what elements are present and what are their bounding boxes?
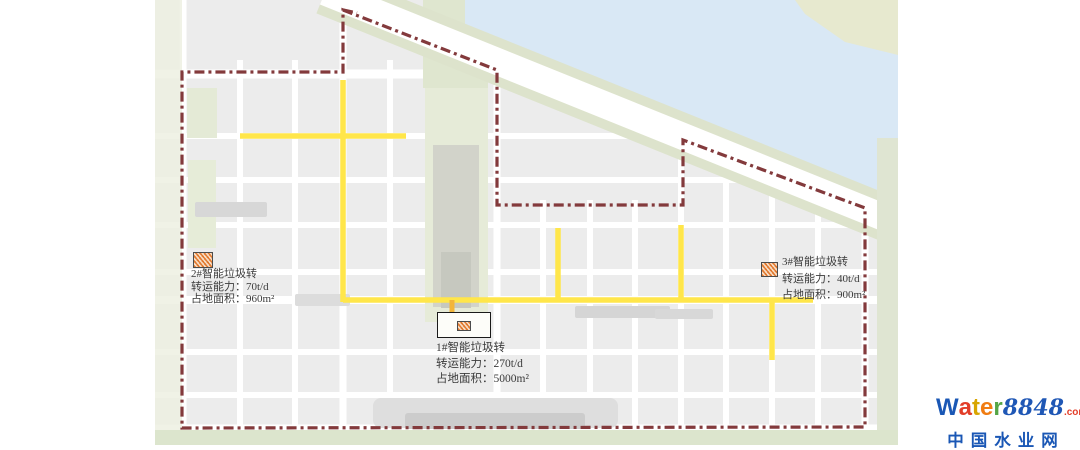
station2-icon xyxy=(193,252,213,268)
site-plan-map: 2#智能垃圾转 转运能力：70t/d 占地面积：960m² 1#智能垃圾转 转运… xyxy=(155,0,898,445)
station1-label: 1#智能垃圾转 转运能力：270t/d 占地面积：5000m² xyxy=(436,341,529,388)
station2-area: 占地面积：960m² xyxy=(191,293,274,306)
building-slab xyxy=(195,202,267,217)
left-green-margin xyxy=(155,0,182,445)
station3-capacity: 转运能力：40t/d xyxy=(782,271,865,288)
station1-title: 1#智能垃圾转 xyxy=(436,341,529,357)
station1-area: 占地面积：5000m² xyxy=(436,372,529,388)
station2-capacity: 转运能力：70t/d xyxy=(191,281,274,294)
bottom-green-strip xyxy=(155,430,898,445)
planning-map-page: 2#智能垃圾转 转运能力：70t/d 占地面积：960m² 1#智能垃圾转 转运… xyxy=(0,0,1080,450)
station3-area: 占地面积：900m² xyxy=(782,287,865,304)
watermark: Water8848.com 中国水业网 xyxy=(936,396,1076,450)
building-slab xyxy=(655,309,713,319)
watermark-row1: Water8848.com xyxy=(936,396,1076,425)
station2-title: 2#智能垃圾转 xyxy=(191,268,274,281)
stadium-band xyxy=(405,413,585,429)
green-block xyxy=(187,88,217,138)
station3-title: 3#智能垃圾转 xyxy=(782,254,865,271)
watermark-word: Water xyxy=(936,394,1003,421)
station1-icon xyxy=(457,321,471,331)
watermark-subtitle: 中国水业网 xyxy=(936,427,1076,450)
station3-label: 3#智能垃圾转 转运能力：40t/d 占地面积：900m² xyxy=(782,254,865,304)
right-green-margin xyxy=(877,138,898,438)
station3-icon xyxy=(761,262,778,277)
station1-capacity: 转运能力：270t/d xyxy=(436,357,529,373)
watermark-number: 8848 xyxy=(1003,395,1064,421)
station2-label: 2#智能垃圾转 转运能力：70t/d 占地面积：960m² xyxy=(191,268,274,306)
watermark-tld: .com xyxy=(1064,407,1080,418)
station1-site-box xyxy=(437,312,491,338)
